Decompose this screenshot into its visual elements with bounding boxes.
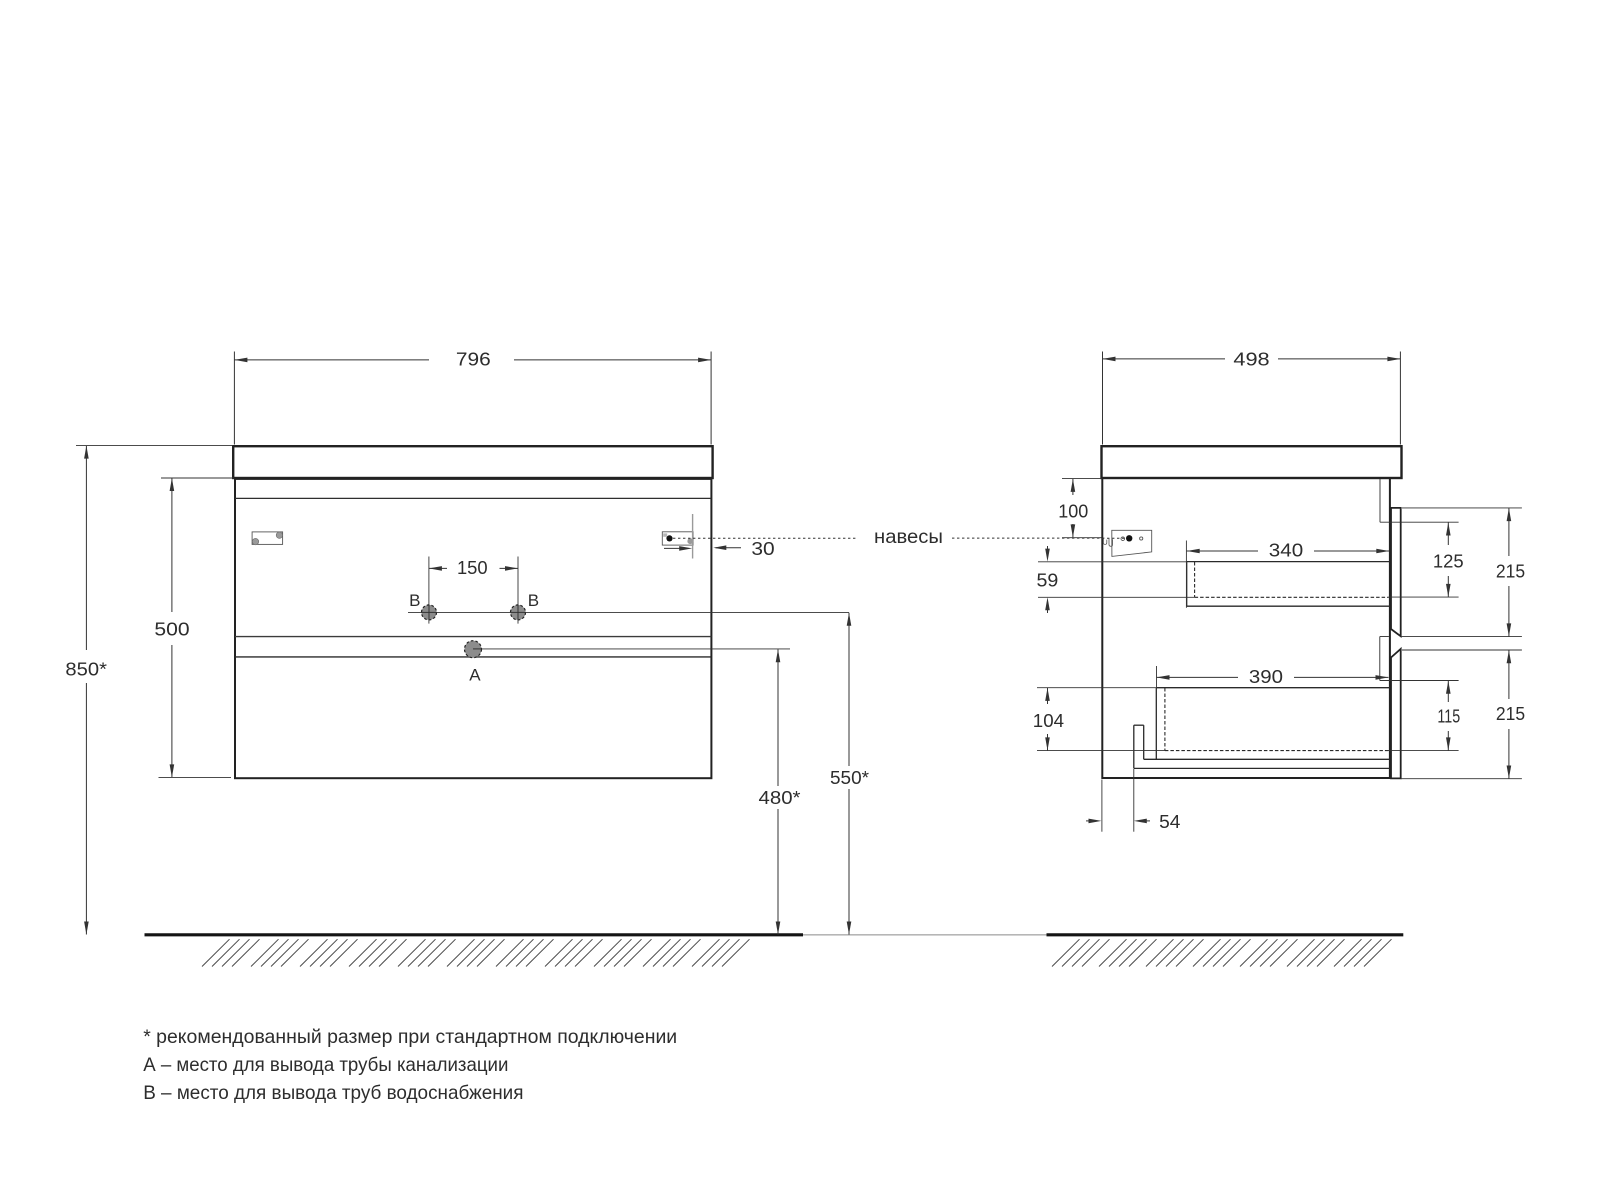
svg-text:B: B	[528, 591, 539, 610]
svg-text:B: B	[409, 591, 420, 610]
svg-text:A: A	[469, 666, 481, 685]
svg-text:498: 498	[1233, 349, 1269, 370]
svg-text:30: 30	[751, 538, 774, 559]
svg-text:480*: 480*	[759, 787, 801, 808]
svg-text:215: 215	[1496, 560, 1525, 581]
svg-text:100: 100	[1058, 501, 1088, 522]
svg-text:150: 150	[457, 557, 488, 578]
svg-text:навесы: навесы	[874, 526, 943, 548]
svg-text:А – место для вывода трубы кан: А – место для вывода трубы канализации	[143, 1054, 508, 1076]
svg-text:796: 796	[456, 348, 491, 369]
svg-text:104: 104	[1033, 710, 1064, 731]
svg-text:550*: 550*	[830, 767, 869, 788]
svg-text:В – место для вывода труб водо: В – место для вывода труб водоснабжения	[143, 1082, 523, 1104]
svg-text:500: 500	[154, 618, 189, 639]
svg-text:215: 215	[1496, 703, 1525, 724]
svg-text:340: 340	[1269, 540, 1303, 561]
svg-text:390: 390	[1249, 666, 1283, 687]
svg-text:59: 59	[1037, 569, 1059, 590]
svg-text:125: 125	[1433, 551, 1464, 572]
svg-text:* рекомендованный размер при с: * рекомендованный размер при стандартном…	[143, 1026, 677, 1048]
svg-text:115: 115	[1437, 706, 1460, 727]
svg-text:850*: 850*	[65, 659, 107, 680]
svg-text:54: 54	[1159, 811, 1180, 832]
